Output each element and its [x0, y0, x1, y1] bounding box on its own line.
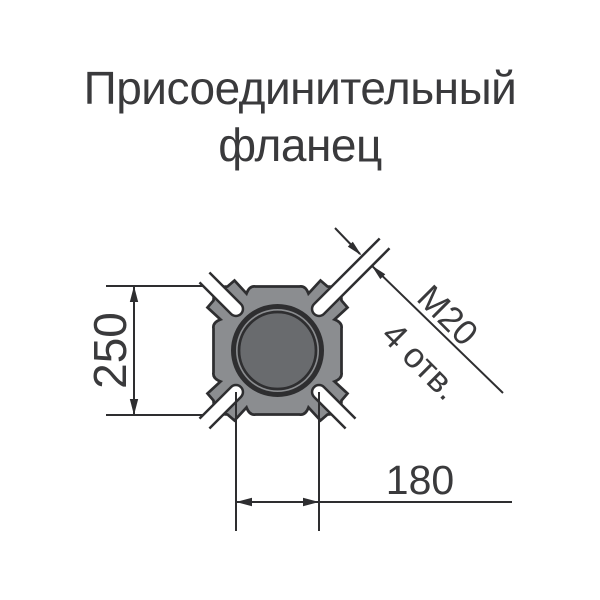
spacing-arrow-right-icon [303, 498, 319, 506]
spacing-dimension-value: 180 [386, 457, 454, 503]
spacing-arrow-left-icon [236, 498, 252, 506]
drawing-page: Присоединительный фланец 250 180 [0, 0, 600, 600]
flange-drawing: 250 180 М20 4 отв. [0, 0, 600, 600]
height-arrow-up-icon [130, 286, 138, 302]
bolt-slot-top-right [312, 239, 389, 316]
flange-body-group [200, 239, 390, 429]
height-arrow-down-icon [130, 399, 138, 415]
bore-inner-circle [239, 312, 316, 389]
height-dimension-value: 250 [84, 312, 136, 389]
